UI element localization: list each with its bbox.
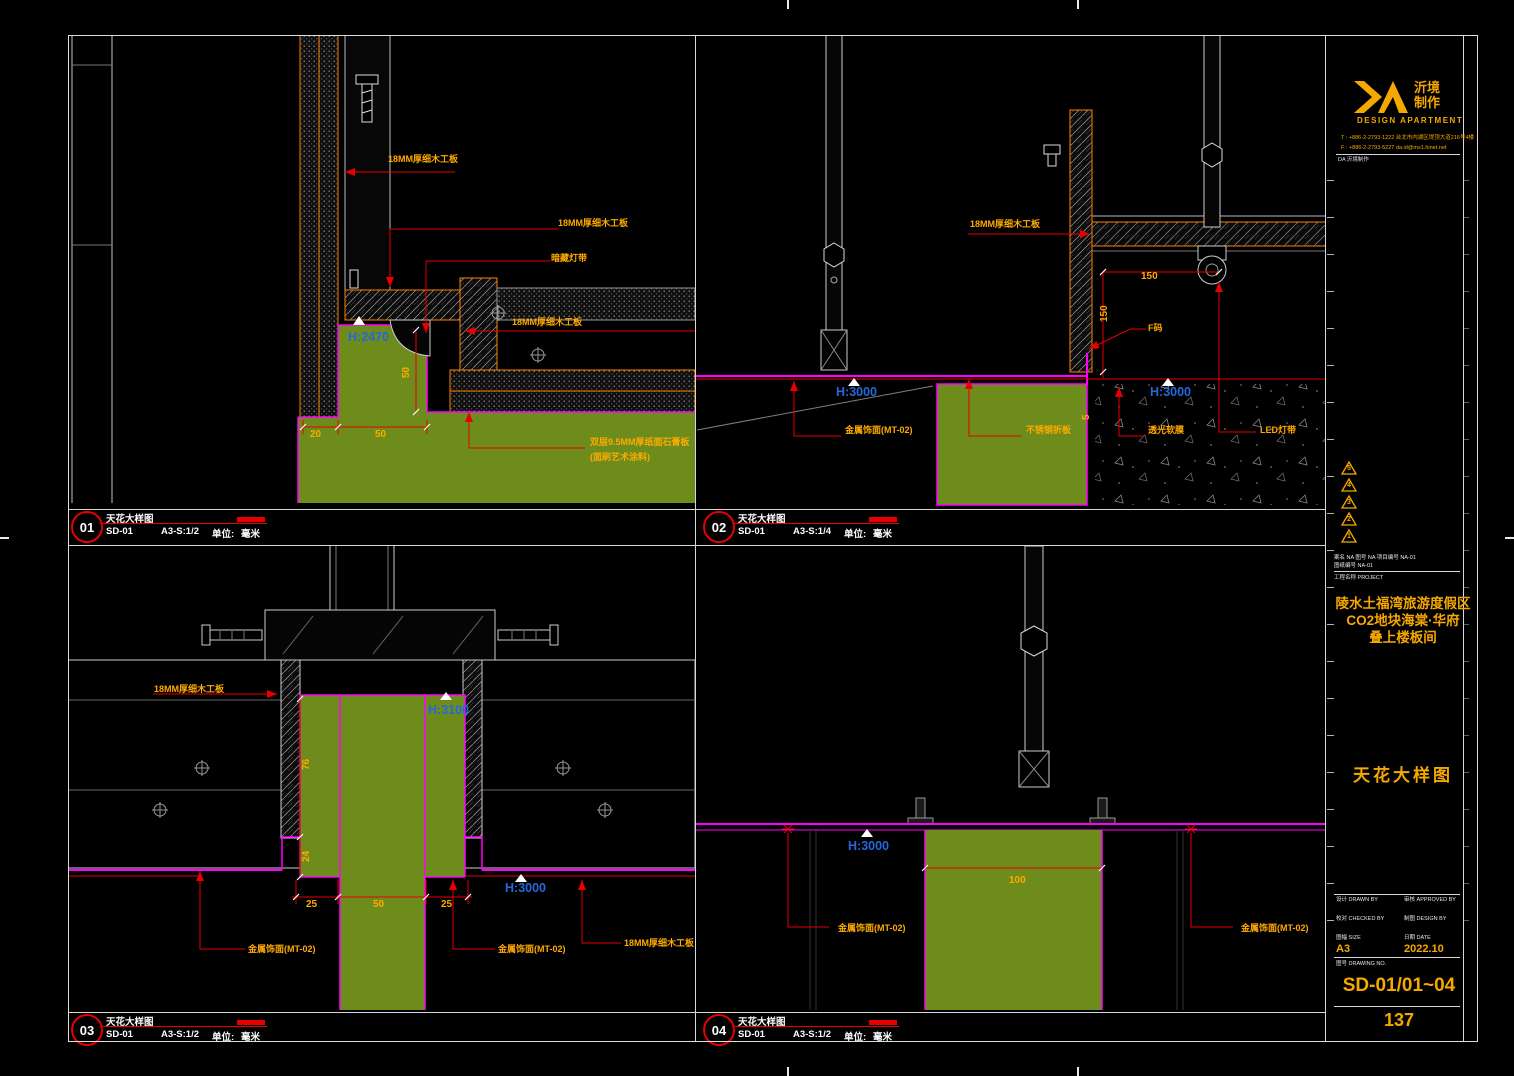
field-size-label: 图幅 SIZE [1336, 935, 1361, 942]
page-number: 137 [1329, 1010, 1469, 1031]
callout-metal-finish: 金属饰面(MT-02) [845, 425, 913, 435]
callout-gypsum-line1: 双层9.5MM厚纸面石膏板 [590, 437, 690, 447]
height-label-2470: H:2470 [348, 331, 389, 344]
brand-name-en: DESIGN APARTMENT [1357, 116, 1463, 125]
panel-04-code: SD-01 [738, 1029, 765, 1040]
panel-04-scale: A3-S:1/2 [793, 1029, 831, 1040]
panel-02-number-text: 02 [712, 520, 726, 535]
titleblock-rule-1 [1336, 154, 1460, 155]
dim-150-vertical: 150 [1100, 305, 1110, 322]
fold-mark-left [0, 537, 9, 539]
revision-number: 2 [1341, 516, 1357, 523]
callout-gypsum-line2: (面刷艺术涂料) [590, 452, 650, 462]
dim-5: 5 [1082, 414, 1092, 420]
brand-tel: T : +886-2-2793-1222 台北市内湖区堤顶大道216号4楼 [1341, 133, 1474, 141]
field-drawn-by: 设计 DRAWN BY [1336, 897, 1378, 904]
fold-mark-top-2 [1077, 0, 1079, 9]
titleblock-rule-5 [1334, 1006, 1460, 1007]
panel-03-code: SD-01 [106, 1029, 133, 1040]
callout-metal-b-p3: 金属饰面(MT-02) [498, 944, 566, 954]
callout-led-strip: LED灯带 [1260, 425, 1296, 435]
ruler-ticks-left [1327, 180, 1334, 930]
dim-76: 76 [302, 759, 312, 770]
revision-number: 1 [1341, 533, 1357, 540]
fold-mark-top-1 [787, 0, 789, 9]
dim-20: 20 [310, 430, 321, 440]
project-name-line3: 叠上楼板间 [1332, 626, 1474, 646]
panel-03-unit-swatch [237, 1020, 265, 1025]
panel-03-underline [102, 1026, 267, 1027]
size-value: A3 [1336, 943, 1350, 955]
dim-150-horizontal: 150 [1141, 272, 1158, 282]
fold-mark-bottom-1 [787, 1067, 789, 1076]
height-label-3000-left: H:3000 [836, 386, 877, 399]
panel-01-code: SD-01 [106, 526, 133, 537]
brand-name-cn: 沂境 制作 [1414, 80, 1440, 110]
panel-02-unit-label: 单位: [844, 526, 866, 540]
panel-01-unit-swatch [237, 517, 265, 522]
callout-membrane: 透光软膜 [1148, 425, 1184, 435]
panel-04-unit-label: 单位: [844, 1029, 866, 1043]
revision-triangle-5: 5 [1341, 461, 1357, 475]
dim-50-vertical: 50 [402, 367, 412, 378]
sheet-number-label: 图号 DRAWING NO. [1336, 961, 1386, 968]
divider-bar-top-row1 [68, 509, 1325, 510]
callout-f-code: F码 [1148, 323, 1163, 333]
panel-04-unit: 毫米 [873, 1029, 892, 1043]
field-approved-by: 审核 APPROVED BY [1404, 897, 1456, 904]
panel-02-underline [734, 523, 899, 524]
date-value: 2022.10 [1404, 943, 1444, 955]
brand-cn-bottom: 制作 [1414, 95, 1440, 110]
revision-triangle-4: 4 [1341, 478, 1357, 492]
callout-stainless-plate: 不锈钢折板 [1026, 425, 1071, 435]
revision-number: 5 [1341, 465, 1357, 472]
drawing-title: 天花大样图 [1332, 761, 1474, 786]
panel-01-unit: 毫米 [241, 526, 260, 540]
info-row-1: 案名 NA 图号 NA 项目编号 NA-01 [1334, 555, 1416, 562]
dim-50: 50 [375, 430, 386, 440]
dim-50-center: 50 [373, 900, 384, 910]
panel-03-scale: A3-S:1/2 [161, 1029, 199, 1040]
panel-03-unit-label: 单位: [212, 1029, 234, 1043]
callout-plywood-right: 18MM厚细木工板 [512, 317, 582, 327]
panel-03-drawing [68, 546, 695, 1012]
sheet-number: SD-01/01~04 [1329, 975, 1469, 997]
panel-04-drawing [695, 546, 1325, 1012]
panel-02-drawing [695, 35, 1325, 509]
callout-plywood-top: 18MM厚细木工板 [388, 154, 458, 164]
fold-mark-right [1505, 537, 1514, 539]
brand-fax: F : +886-2-2793-5227 da.id@ms1.hinet.net [1341, 145, 1446, 151]
height-label-3100: H:3100 [428, 704, 469, 717]
height-label-3000-p4: H:3000 [848, 840, 889, 853]
titleblock-rule-4 [1334, 957, 1460, 958]
callout-plywood: 18MM厚细木工板 [970, 219, 1040, 229]
panel-02-unit-swatch [869, 517, 897, 522]
callout-metal-a-p3: 金属饰面(MT-02) [248, 944, 316, 954]
panel-04-underline [734, 1026, 899, 1027]
panel-03-number: 03 [71, 1014, 103, 1046]
revision-triangle-1: 1 [1341, 529, 1357, 543]
panel-02-number: 02 [703, 511, 735, 543]
divider-horizontal-center [68, 545, 1325, 546]
height-label-3000-right: H:3000 [1150, 386, 1191, 399]
field-design-by: 制图 DESIGN BY [1404, 916, 1446, 923]
panel-01-underline [102, 523, 267, 524]
callout-metal-b-p4: 金属饰面(MT-02) [1241, 923, 1309, 933]
titleblock-rule-2 [1334, 571, 1460, 572]
callout-hidden-light: 暗藏灯带 [551, 253, 587, 263]
callout-plywood-top-p3: 18MM厚细木工板 [154, 684, 224, 694]
dim-25-left: 25 [306, 900, 317, 910]
callout-plywood-bottom-p3: 18MM厚细木工板 [624, 938, 694, 948]
dim-100: 100 [1009, 876, 1026, 886]
panel-02-scale: A3-S:1/4 [793, 526, 831, 537]
height-label-3000-p3: H:3000 [505, 882, 546, 895]
panel-04-number-text: 04 [712, 1023, 726, 1038]
brand-stamp: DA 沂境制作 [1338, 157, 1369, 164]
info-row-2: 图纸编号 NA-01 [1334, 563, 1373, 570]
panel-03-unit: 毫米 [241, 1029, 260, 1043]
fold-mark-bottom-2 [1077, 1067, 1079, 1076]
field-checked-by: 校对 CHECKED BY [1336, 916, 1384, 923]
panel-01-number: 01 [71, 511, 103, 543]
ruler-ticks-right [1464, 180, 1469, 930]
callout-plywood-mid: 18MM厚细木工板 [558, 218, 628, 228]
panel-02-unit: 毫米 [873, 526, 892, 540]
info-row-3: 工程名称 PROJECT [1334, 575, 1383, 582]
divider-vertical-center [695, 35, 696, 1042]
titleblock-rule-3 [1334, 894, 1460, 895]
revision-triangle-3: 3 [1341, 495, 1357, 509]
panel-02-code: SD-01 [738, 526, 765, 537]
field-date-label: 日期 DATE [1404, 935, 1431, 942]
divider-bar-top-row2 [68, 1012, 1325, 1013]
panel-04-unit-swatch [869, 1020, 897, 1025]
panel-04-number: 04 [703, 1014, 735, 1046]
revision-triangle-2: 2 [1341, 512, 1357, 526]
revision-number: 4 [1341, 482, 1357, 489]
brand-logo-icon [1352, 78, 1412, 116]
dim-25-right: 25 [441, 900, 452, 910]
panel-01-unit-label: 单位: [212, 526, 234, 540]
revision-number: 3 [1341, 499, 1357, 506]
callout-metal-a-p4: 金属饰面(MT-02) [838, 923, 906, 933]
cad-sheet: 18MM厚细木工板 18MM厚细木工板 暗藏灯带 18MM厚细木工板 双层9.5… [0, 0, 1514, 1076]
brand-cn-top: 沂境 [1414, 80, 1440, 95]
dim-24: 24 [302, 851, 312, 862]
panel-03-number-text: 03 [80, 1023, 94, 1038]
divider-titleblock [1325, 35, 1326, 1042]
panel-01-number-text: 01 [80, 520, 94, 535]
panel-01-scale: A3-S:1/2 [161, 526, 199, 537]
